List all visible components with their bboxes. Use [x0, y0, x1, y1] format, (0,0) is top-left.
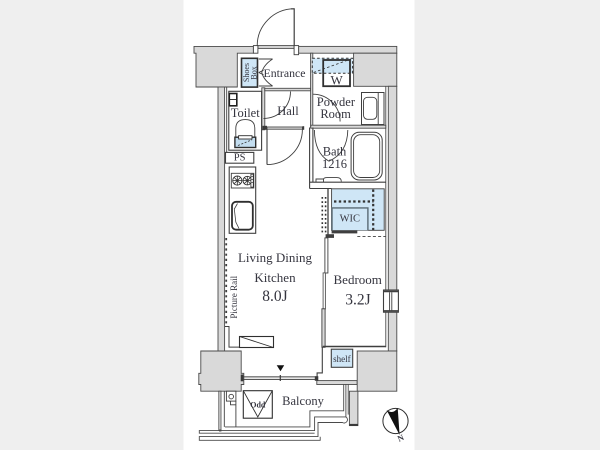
svg-text:Room: Room	[320, 107, 351, 121]
svg-text:Living Dining: Living Dining	[238, 250, 313, 265]
svg-text:Kitchen: Kitchen	[254, 270, 296, 285]
svg-text:PS: PS	[234, 153, 246, 164]
svg-text:Balcony: Balcony	[282, 394, 324, 408]
svg-text:shelf: shelf	[333, 354, 351, 364]
svg-text:Hall: Hall	[277, 104, 299, 118]
svg-text:Box: Box	[249, 66, 258, 79]
svg-text:Bedroom: Bedroom	[334, 272, 382, 287]
svg-text:8.0J: 8.0J	[262, 288, 287, 305]
svg-text:Odd: Odd	[250, 400, 266, 409]
svg-text:3.2J: 3.2J	[345, 291, 370, 308]
svg-text:W: W	[330, 73, 343, 88]
svg-text:Entrance: Entrance	[264, 66, 306, 80]
svg-text:1216: 1216	[322, 157, 347, 171]
svg-text:WIC: WIC	[340, 214, 360, 225]
svg-text:Toilet: Toilet	[231, 106, 261, 120]
svg-text:Picture Rail: Picture Rail	[229, 275, 239, 318]
